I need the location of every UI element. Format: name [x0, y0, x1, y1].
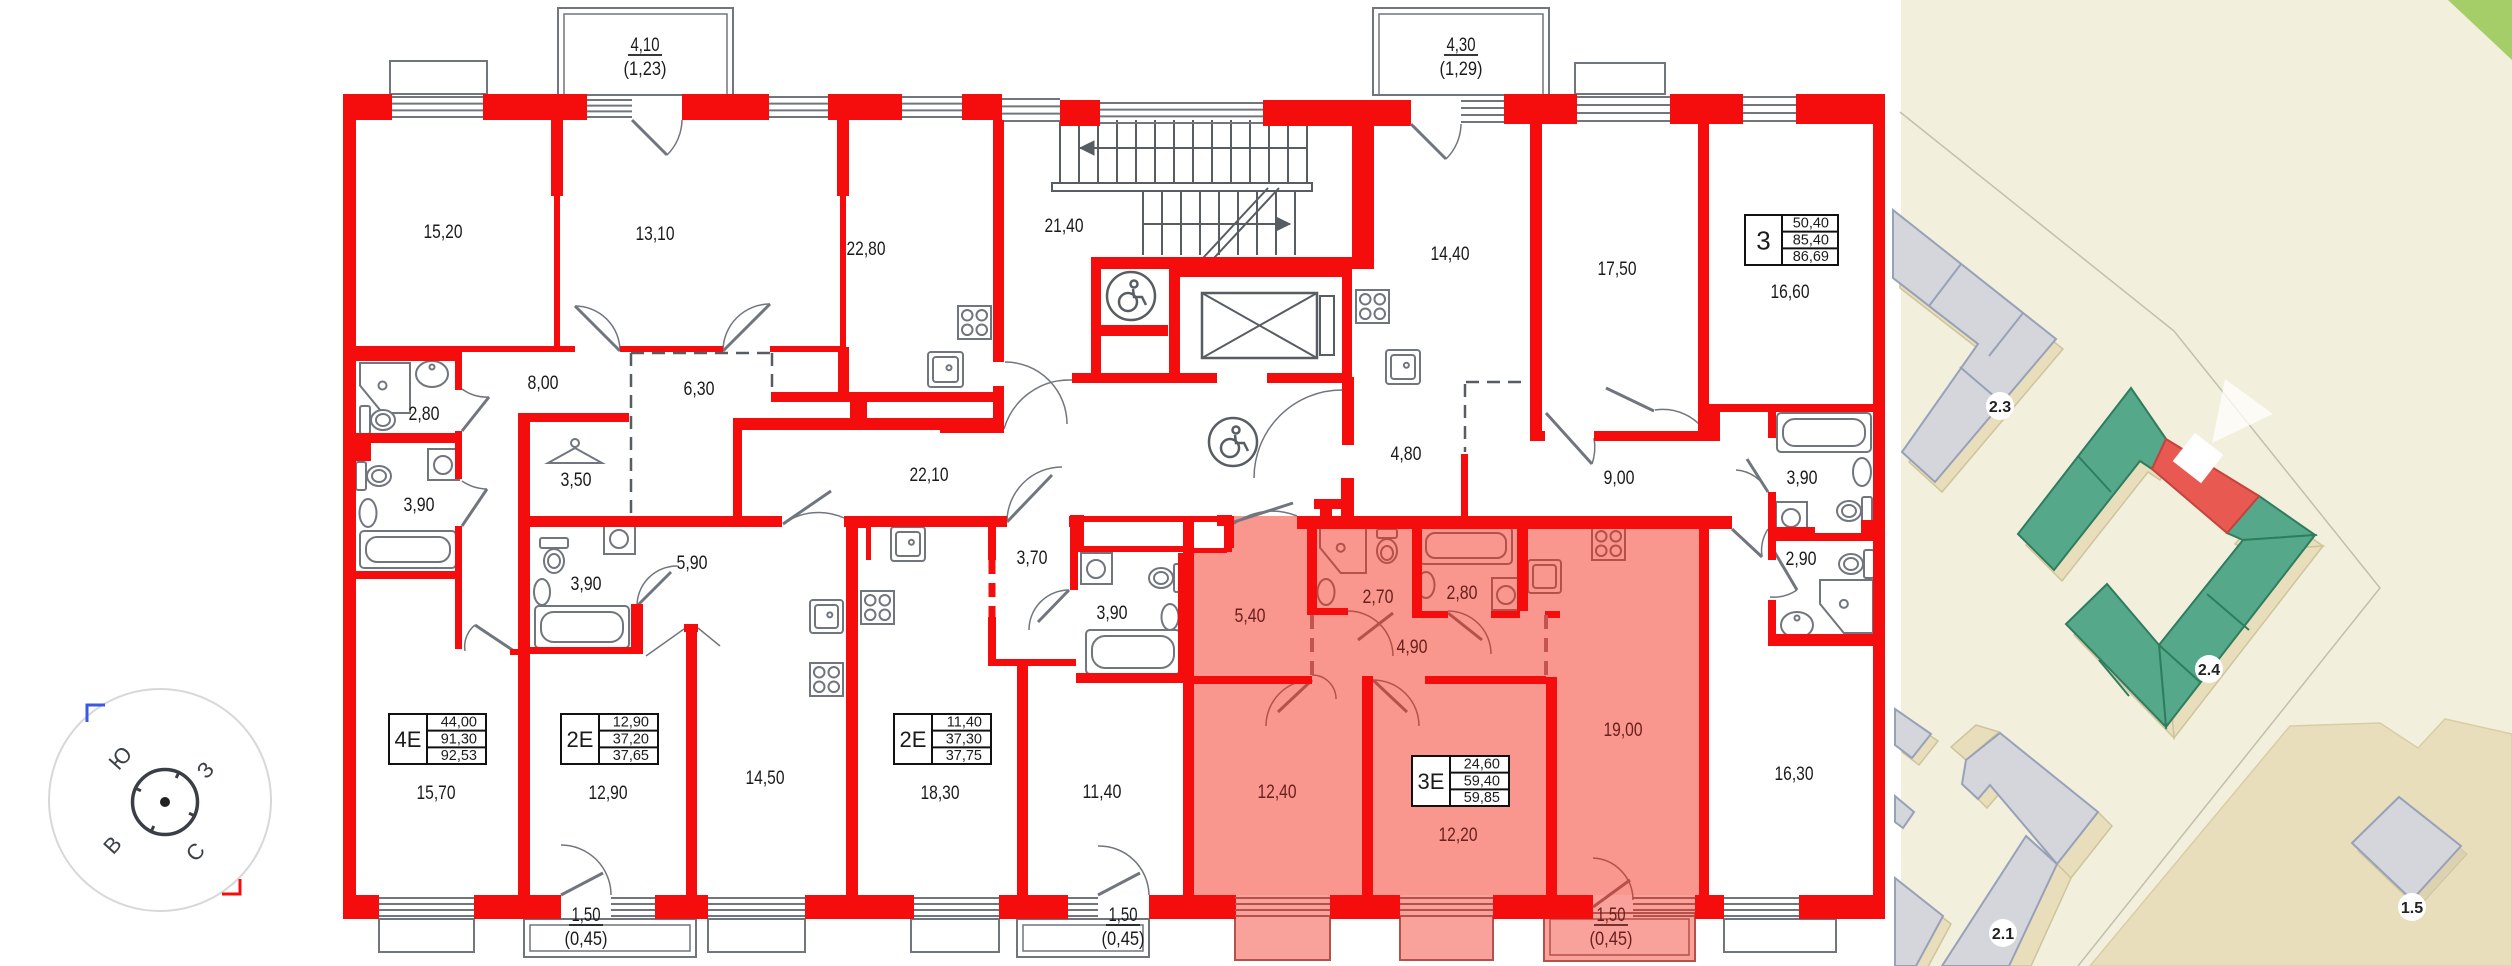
svg-text:3,90: 3,90	[571, 573, 602, 595]
svg-text:3: 3	[1756, 225, 1770, 255]
svg-text:(1,29): (1,29)	[1440, 58, 1483, 80]
svg-text:21,40: 21,40	[1045, 215, 1084, 237]
svg-text:4,30: 4,30	[1447, 34, 1476, 56]
svg-text:50,40: 50,40	[1793, 216, 1829, 232]
svg-text:17,50: 17,50	[1598, 258, 1637, 280]
svg-text:85,40: 85,40	[1793, 232, 1829, 248]
svg-text:2,90: 2,90	[1786, 548, 1817, 570]
svg-text:92,53: 92,53	[441, 748, 477, 764]
svg-text:37,20: 37,20	[613, 731, 649, 747]
svg-text:3,90: 3,90	[1787, 467, 1818, 489]
svg-text:2.1: 2.1	[1992, 926, 2014, 943]
svg-text:12,40: 12,40	[1258, 781, 1297, 803]
svg-text:18,30: 18,30	[921, 782, 960, 804]
svg-text:13,10: 13,10	[636, 223, 675, 245]
svg-text:3E: 3E	[1418, 769, 1445, 794]
svg-text:(1,23): (1,23)	[624, 58, 667, 80]
svg-text:14,40: 14,40	[1431, 243, 1470, 265]
svg-text:4E: 4E	[395, 727, 422, 752]
svg-text:5,90: 5,90	[677, 552, 708, 574]
svg-text:1,50: 1,50	[1109, 904, 1138, 926]
svg-text:16,30: 16,30	[1775, 763, 1814, 785]
svg-text:3,90: 3,90	[1097, 602, 1128, 624]
svg-text:9,00: 9,00	[1604, 467, 1635, 489]
svg-text:8,00: 8,00	[528, 372, 559, 394]
svg-text:3,90: 3,90	[404, 494, 435, 516]
svg-text:4,80: 4,80	[1391, 443, 1422, 465]
svg-text:37,65: 37,65	[613, 748, 649, 764]
svg-text:2,70: 2,70	[1363, 586, 1394, 608]
svg-text:1,50: 1,50	[1597, 904, 1626, 926]
svg-text:2.3: 2.3	[1989, 399, 2011, 416]
svg-text:6,30: 6,30	[684, 378, 715, 400]
svg-text:37,30: 37,30	[946, 731, 982, 747]
svg-text:2.4: 2.4	[2198, 662, 2220, 679]
svg-text:12,20: 12,20	[1439, 824, 1478, 846]
svg-text:16,60: 16,60	[1771, 281, 1810, 303]
svg-text:12,90: 12,90	[589, 782, 628, 804]
svg-text:3,70: 3,70	[1017, 547, 1048, 569]
svg-text:4,90: 4,90	[1397, 636, 1428, 658]
svg-text:91,30: 91,30	[441, 731, 477, 747]
svg-text:5,40: 5,40	[1235, 605, 1266, 627]
svg-text:2E: 2E	[567, 727, 594, 752]
svg-text:37,75: 37,75	[946, 748, 982, 764]
svg-text:2,80: 2,80	[1447, 582, 1478, 604]
svg-text:11,40: 11,40	[1083, 781, 1122, 803]
svg-text:1,50: 1,50	[572, 904, 601, 926]
svg-text:(0,45): (0,45)	[565, 928, 608, 950]
svg-text:59,40: 59,40	[1464, 773, 1500, 789]
svg-text:11,40: 11,40	[947, 715, 982, 731]
svg-text:59,85: 59,85	[1464, 790, 1500, 806]
svg-text:4,10: 4,10	[631, 34, 660, 56]
svg-text:1.5: 1.5	[2401, 900, 2423, 917]
svg-text:2E: 2E	[900, 727, 927, 752]
svg-text:15,70: 15,70	[417, 782, 456, 804]
svg-text:22,80: 22,80	[847, 238, 886, 260]
svg-text:24,60: 24,60	[1464, 757, 1500, 773]
svg-text:2,80: 2,80	[409, 403, 440, 425]
svg-text:3,50: 3,50	[561, 469, 592, 491]
svg-text:(0,45): (0,45)	[1102, 928, 1145, 950]
svg-text:15,20: 15,20	[424, 221, 463, 243]
svg-text:22,10: 22,10	[910, 464, 949, 486]
svg-text:44,00: 44,00	[441, 715, 477, 731]
svg-text:14,50: 14,50	[746, 767, 785, 789]
svg-text:(0,45): (0,45)	[1590, 928, 1633, 950]
svg-text:86,69: 86,69	[1793, 249, 1829, 265]
svg-text:19,00: 19,00	[1604, 719, 1643, 741]
svg-text:12,90: 12,90	[613, 715, 649, 731]
